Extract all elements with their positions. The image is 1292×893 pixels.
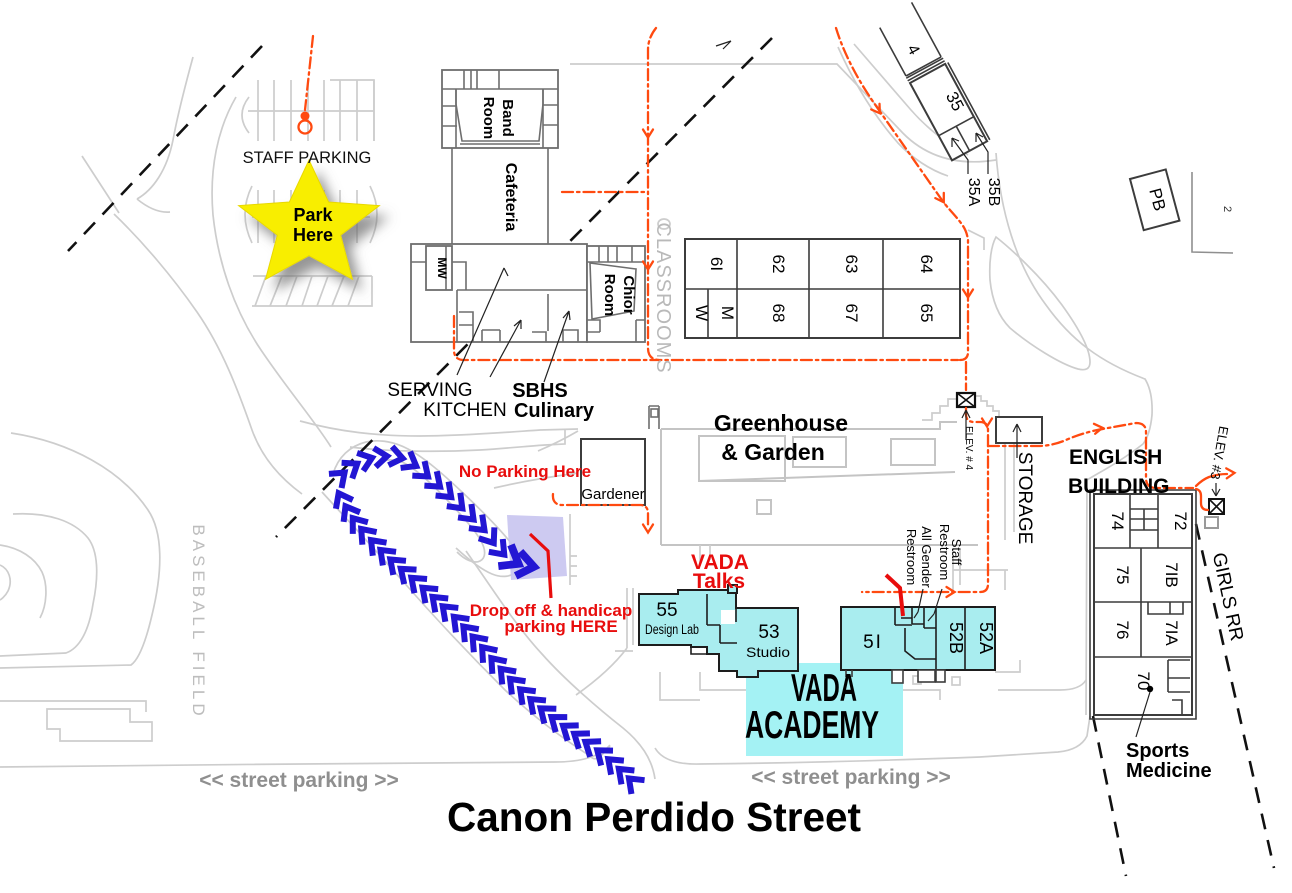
svg-text:62: 62 — [769, 255, 788, 274]
svg-text:7IA: 7IA — [1162, 620, 1181, 646]
svg-text:Park: Park — [293, 205, 333, 225]
svg-text:53: 53 — [758, 622, 779, 643]
svg-text:55: 55 — [656, 600, 677, 621]
svg-text:KITCHEN: KITCHEN — [423, 400, 506, 421]
svg-text:MW: MW — [435, 257, 449, 279]
svg-text:ENGLISH: ENGLISH — [1069, 446, 1162, 469]
svg-text:Greenhouse: Greenhouse — [714, 410, 848, 436]
svg-text:Canon Perdido Street: Canon Perdido Street — [447, 794, 861, 840]
svg-text:6I: 6I — [707, 257, 726, 271]
svg-text:M: M — [718, 306, 737, 320]
svg-text:5I: 5I — [863, 632, 883, 653]
svg-text:Restroom: Restroom — [937, 524, 952, 580]
svg-text:Room: Room — [601, 274, 618, 317]
svg-text:Chior: Chior — [620, 275, 637, 314]
svg-text:STAFF PARKING: STAFF PARKING — [243, 149, 372, 167]
svg-text:76: 76 — [1113, 621, 1132, 640]
svg-text:BASEBALL FIELD: BASEBALL FIELD — [189, 524, 208, 719]
svg-text:63: 63 — [842, 255, 861, 274]
svg-text:Talks: Talks — [693, 570, 745, 593]
svg-text:Restroom: Restroom — [904, 529, 919, 585]
svg-text:<< street parking >>: << street parking >> — [751, 766, 951, 789]
svg-text:74: 74 — [1108, 512, 1127, 531]
svg-text:7IB: 7IB — [1162, 562, 1181, 588]
svg-text:& Garden: & Garden — [721, 439, 825, 465]
svg-text:Medicine: Medicine — [1126, 760, 1212, 782]
svg-text:No Parking Here: No Parking Here — [459, 462, 591, 481]
svg-text:CLASSROOMS: CLASSROOMS — [652, 222, 674, 373]
svg-text:75: 75 — [1113, 566, 1132, 585]
svg-text:67: 67 — [842, 304, 861, 323]
svg-text:BUILDING: BUILDING — [1068, 475, 1170, 498]
svg-text:52B: 52B — [946, 622, 966, 654]
svg-text:W: W — [692, 305, 711, 321]
svg-text:Design Lab: Design Lab — [645, 622, 699, 637]
svg-text:<< street parking >>: << street parking >> — [199, 769, 399, 792]
svg-text:2: 2 — [1221, 206, 1233, 212]
svg-text:Room: Room — [480, 97, 497, 140]
svg-text:STORAGE: STORAGE — [1014, 452, 1035, 545]
svg-text:72: 72 — [1171, 512, 1190, 531]
svg-text:65: 65 — [917, 304, 936, 323]
svg-text:Culinary: Culinary — [514, 400, 595, 422]
svg-text:35A: 35A — [965, 178, 982, 207]
svg-text:68: 68 — [769, 304, 788, 323]
svg-text:Band: Band — [499, 99, 516, 137]
svg-text:Sports: Sports — [1126, 740, 1189, 762]
svg-text:SBHS: SBHS — [512, 380, 568, 402]
svg-text:64: 64 — [917, 255, 936, 274]
svg-text:ELEV. # 4: ELEV. # 4 — [963, 426, 974, 471]
svg-text:parking HERE: parking HERE — [504, 617, 617, 636]
svg-text:Studio: Studio — [746, 644, 790, 660]
svg-text:Gardener: Gardener — [581, 486, 644, 503]
svg-text:ACADEMY: ACADEMY — [745, 704, 879, 747]
svg-text:All Gender: All Gender — [919, 526, 934, 588]
svg-text:35B: 35B — [985, 178, 1002, 206]
svg-text:52A: 52A — [976, 622, 996, 654]
svg-text:Cafeteria: Cafeteria — [502, 163, 519, 232]
svg-text:Here: Here — [293, 225, 333, 245]
svg-text:SERVING: SERVING — [387, 380, 472, 401]
